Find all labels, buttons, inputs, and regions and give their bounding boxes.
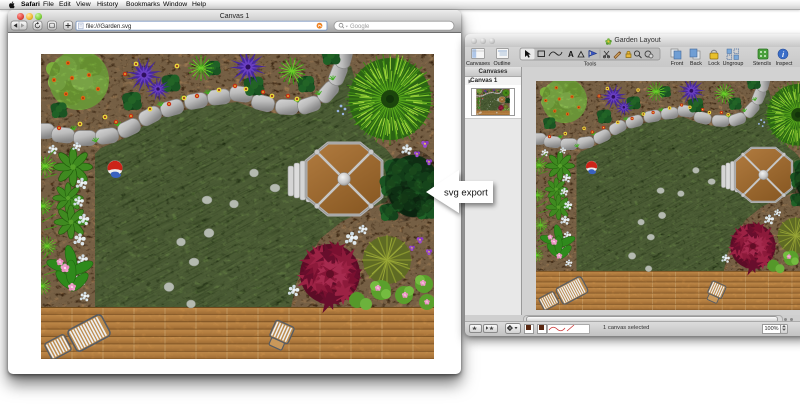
svg-text:A: A — [568, 50, 574, 59]
svg-text:Google: Google — [350, 24, 370, 30]
svg-text:file:///Garden.svg: file:///Garden.svg — [86, 24, 131, 30]
svg-text:svg export: svg export — [444, 188, 488, 199]
